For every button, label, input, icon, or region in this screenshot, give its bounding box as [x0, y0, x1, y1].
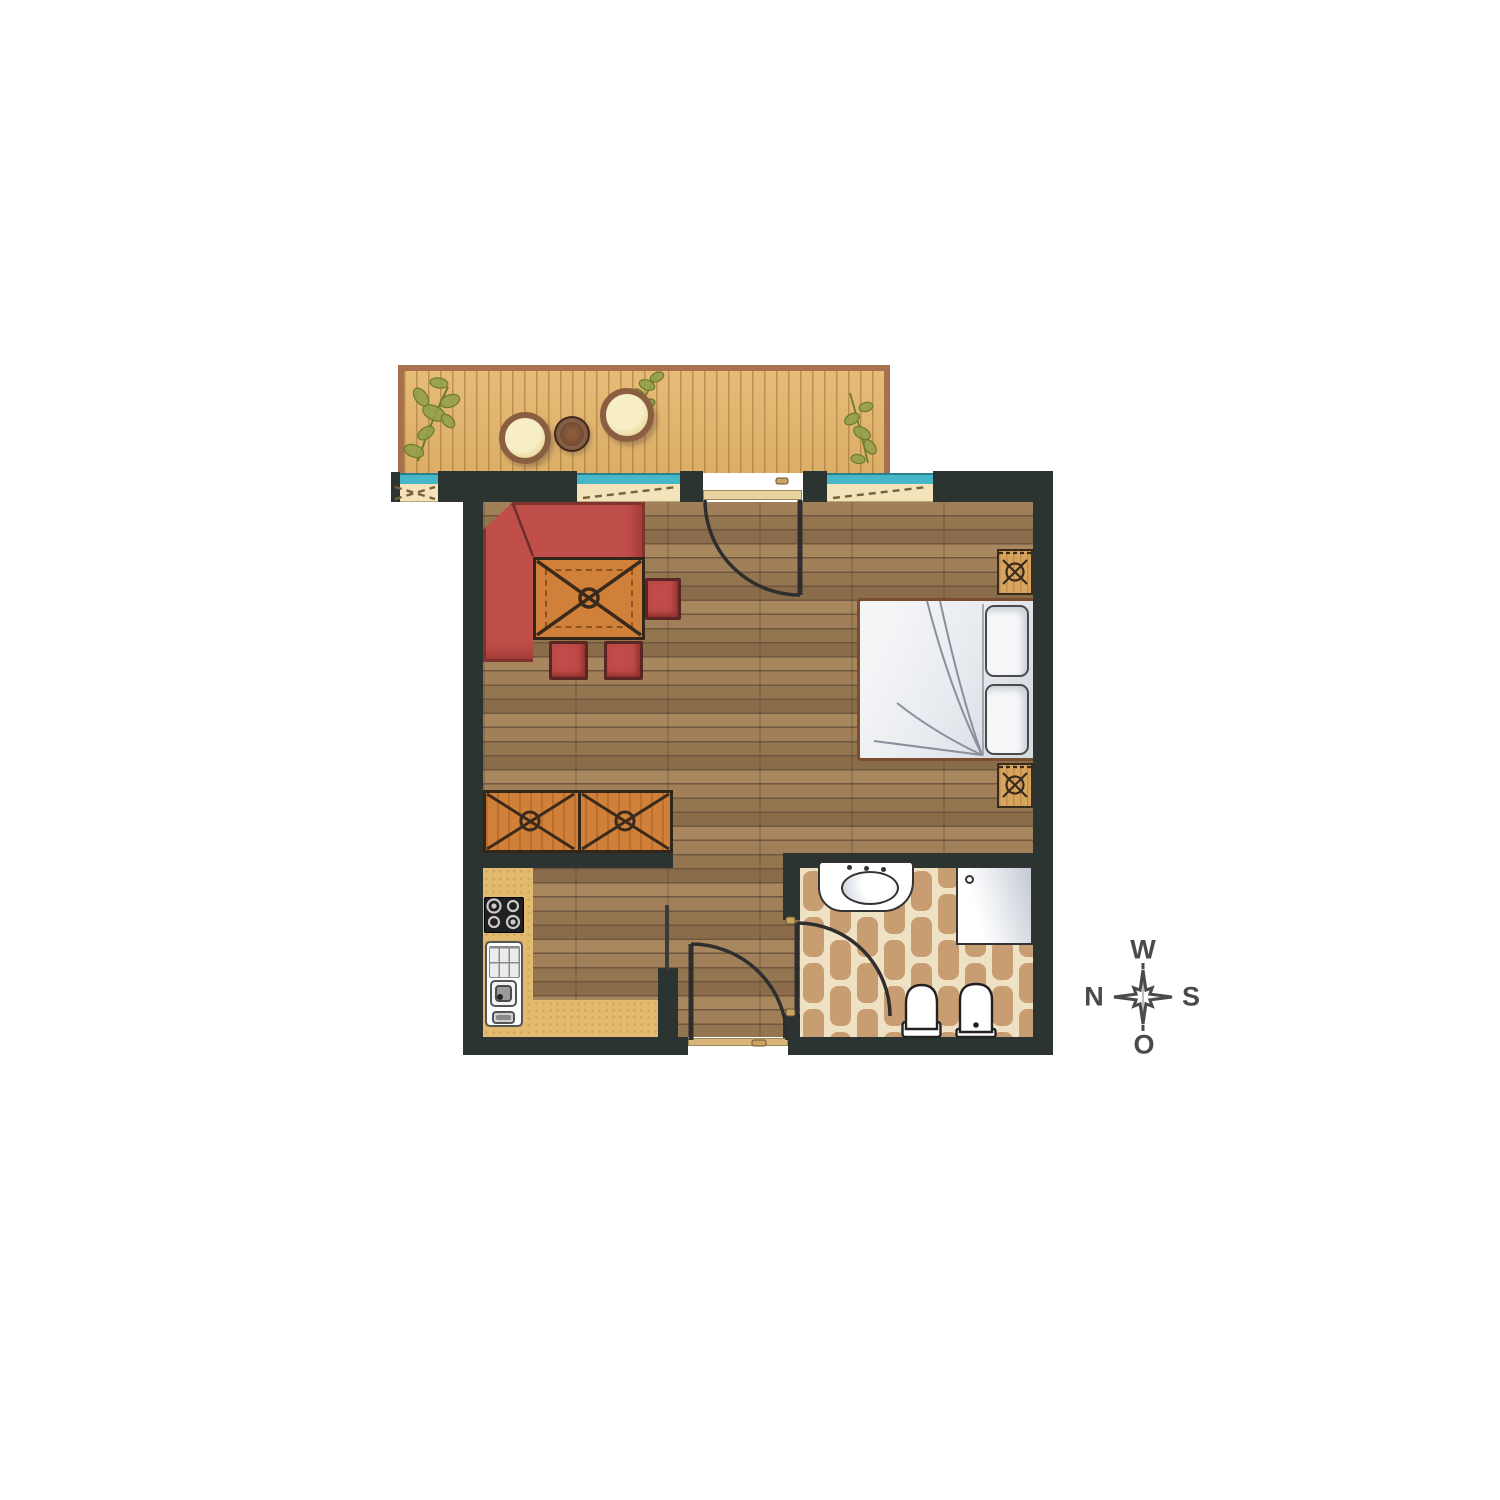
window-sill: [400, 484, 438, 502]
wall-end-cap: [391, 472, 400, 502]
egg-chair-icon: [499, 412, 551, 464]
sink-small-basin: [492, 1011, 515, 1024]
shower-icon: [956, 866, 1033, 945]
kitchen-counter-bottom: [533, 1000, 658, 1037]
wardrobe-icon: [483, 790, 673, 853]
wall-bottom-right: [788, 1037, 1053, 1055]
shower-drain: [965, 875, 974, 884]
entry-partition-screen: [665, 905, 669, 970]
wall-bathroom-left-lower: [783, 1014, 800, 1039]
round-table-icon: [554, 416, 590, 452]
sink-basin: [490, 980, 517, 1007]
wall-bathroom-left-upper: [783, 866, 800, 920]
pillow-icon: [985, 605, 1029, 677]
wall-top-door-jamb-right: [803, 471, 827, 502]
window-glass: [577, 473, 680, 484]
window-sill: [577, 484, 680, 502]
nightstand-icon: [997, 763, 1033, 808]
wall-entry-partition: [658, 968, 678, 1038]
wall-kitchen-partition: [463, 853, 673, 868]
wall-right: [1033, 500, 1053, 1055]
compass-south-label: S: [1182, 982, 1200, 1013]
floor-plan-canvas: W S O N: [0, 0, 1500, 1500]
sink-drainboard: [489, 946, 520, 978]
wall-top-left: [438, 471, 577, 502]
window-glass: [400, 473, 438, 484]
stove-icon: [484, 897, 524, 933]
vanity-basin: [841, 871, 899, 905]
kitchen-sink-icon: [485, 941, 523, 1027]
pillow-icon: [985, 684, 1029, 755]
plant-icon: [404, 377, 461, 461]
stool-icon: [645, 578, 681, 620]
table-inlay: [545, 569, 633, 628]
stool-icon: [604, 641, 643, 680]
nightstand-icon: [997, 549, 1033, 595]
window-sill: [827, 484, 933, 502]
compass-north-label: N: [1084, 982, 1104, 1013]
window-left: [400, 473, 438, 502]
wall-bottom-left: [463, 1037, 688, 1055]
window-glass: [827, 473, 933, 484]
plant-icon: [843, 393, 879, 465]
window-right: [827, 473, 933, 502]
compass-east-label: O: [1133, 1030, 1154, 1061]
stool-icon: [549, 641, 588, 680]
entrance-threshold: [688, 1038, 788, 1046]
wall-top-door-jamb-left: [680, 471, 703, 502]
compass-west-label: W: [1130, 935, 1155, 966]
balcony: [398, 365, 890, 473]
egg-chair-icon: [600, 388, 654, 442]
window-middle: [577, 473, 680, 502]
balcony-door-threshold: [703, 490, 802, 500]
vanity-sink-icon: [818, 862, 914, 912]
wall-top-right: [933, 471, 1053, 502]
dining-table-icon: [533, 557, 645, 640]
compass-star-icon: [1114, 963, 1172, 1031]
faucet-dots: [864, 866, 869, 871]
wall-left: [463, 500, 483, 1055]
